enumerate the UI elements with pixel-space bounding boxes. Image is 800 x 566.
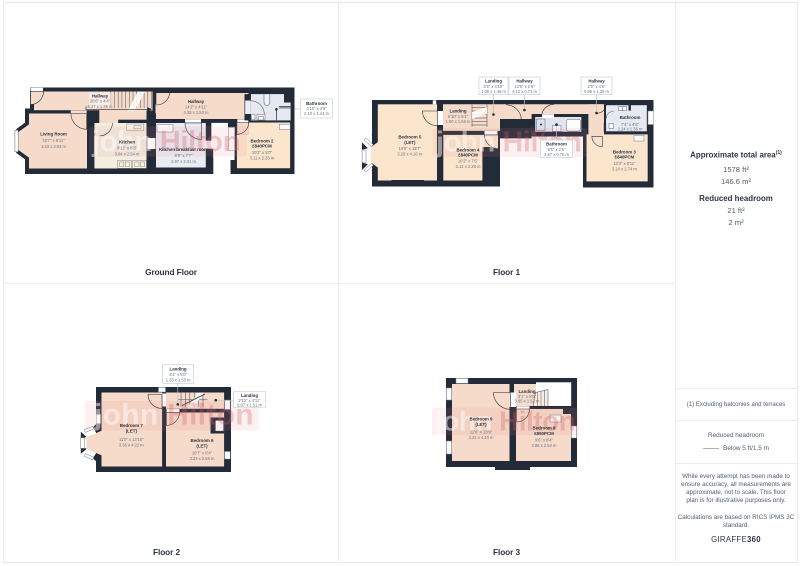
- svg-text:3.12 x 2.28 m: 3.12 x 2.28 m: [456, 164, 481, 169]
- svg-text:john Hilton: john Hilton: [434, 406, 575, 437]
- svg-text:(LET): (LET): [404, 140, 416, 145]
- svg-text:1.33 x 1.53 m: 1.33 x 1.53 m: [166, 377, 191, 382]
- svg-text:Bedroom 8: Bedroom 8: [533, 426, 556, 431]
- svg-text:3.29 x 4.16 m: 3.29 x 4.16 m: [397, 152, 422, 157]
- svg-text:Bedroom 3: Bedroom 3: [613, 149, 636, 154]
- svg-text:3.36 x 4.22 m: 3.36 x 4.22 m: [119, 443, 144, 448]
- svg-text:1.05 x 1.48 m: 1.05 x 1.48 m: [481, 89, 506, 94]
- svg-text:10'2" x 7'5": 10'2" x 7'5": [458, 159, 479, 164]
- svg-text:9'6" x 8'4": 9'6" x 8'4": [535, 438, 553, 443]
- svg-text:john Hilton: john Hilton: [93, 399, 254, 432]
- svg-text:Hallway: Hallway: [188, 99, 205, 104]
- svg-text:3.22 x 4.20 m: 3.22 x 4.20 m: [469, 435, 494, 440]
- svg-text:1.80 x 1.56 m: 1.80 x 1.56 m: [446, 119, 471, 124]
- svg-text:Kitchen: Kitchen: [119, 139, 135, 144]
- svg-text:10'7" x 9'11": 10'7" x 9'11": [42, 138, 65, 143]
- svg-text:0.87 x 1.51 m: 0.87 x 1.51 m: [237, 402, 262, 407]
- svg-text:£840PCM: £840PCM: [458, 153, 478, 158]
- svg-text:john Hilton: john Hilton: [91, 126, 240, 158]
- svg-text:2.57 x 0.76 m: 2.57 x 0.76 m: [544, 152, 569, 157]
- svg-text:£850PCM: £850PCM: [534, 431, 554, 436]
- svg-text:2.88 x 2.54 m: 2.88 x 2.54 m: [532, 443, 557, 448]
- svg-text:Bedroom 2: Bedroom 2: [251, 138, 274, 143]
- svg-text:Bedroom 5: Bedroom 5: [398, 135, 421, 140]
- svg-text:3.14 x 2.74 m: 3.14 x 2.74 m: [612, 166, 637, 171]
- svg-text:(LET): (LET): [475, 422, 487, 427]
- svg-text:(LET): (LET): [196, 443, 208, 448]
- svg-text:9'11" x 8'3": 9'11" x 8'3": [117, 146, 137, 151]
- svg-text:2.10 x 1.44 m: 2.10 x 1.44 m: [304, 111, 329, 116]
- svg-text:3.04 x 2.54 m: 3.04 x 2.54 m: [115, 152, 140, 157]
- svg-text:(LET): (LET): [126, 428, 138, 433]
- svg-text:6.27 x 1.35 m: 6.27 x 1.35 m: [88, 104, 113, 109]
- svg-text:Bedroom 9: Bedroom 9: [470, 417, 493, 422]
- svg-text:£840PCM: £840PCM: [252, 144, 272, 149]
- svg-text:2.97 x 2.31 m: 2.97 x 2.31 m: [171, 159, 196, 164]
- svg-text:Bedroom 4: Bedroom 4: [457, 147, 480, 152]
- svg-text:11'0" x 13'10": 11'0" x 13'10": [119, 437, 144, 442]
- svg-text:0.95 x 1.52 m: 0.95 x 1.52 m: [515, 399, 540, 404]
- svg-text:10'2" x 8'0": 10'2" x 8'0": [252, 150, 273, 155]
- svg-text:Living Room: Living Room: [40, 132, 67, 137]
- svg-text:3.23 x 2.55 m: 3.23 x 2.55 m: [190, 456, 215, 461]
- svg-text:4.12 x 0.73 m: 4.12 x 0.73 m: [512, 89, 537, 94]
- svg-text:4.35 x 1.50 m: 4.35 x 1.50 m: [184, 110, 209, 115]
- svg-text:Landing: Landing: [170, 367, 187, 372]
- svg-text:10'7" x 8'4": 10'7" x 8'4": [192, 451, 213, 456]
- svg-text:Hallway: Hallway: [92, 93, 109, 98]
- svg-text:3.23 x 3.03 m: 3.23 x 3.03 m: [41, 144, 66, 149]
- svg-text:3.11 x 2.33 m: 3.11 x 2.33 m: [250, 155, 275, 160]
- svg-text:Bedroom 6: Bedroom 6: [191, 438, 214, 443]
- svg-text:9'9" x 7'7": 9'9" x 7'7": [175, 153, 193, 158]
- svg-text:Bedroom 7: Bedroom 7: [120, 423, 143, 428]
- svg-text:11'6" x 13'9": 11'6" x 13'9": [470, 430, 493, 435]
- svg-text:2.24 x 1.36 m: 2.24 x 1.36 m: [618, 127, 643, 132]
- svg-text:Bathroom: Bathroom: [620, 115, 641, 120]
- svg-text:10'9" x 13'7": 10'9" x 13'7": [399, 146, 422, 151]
- svg-text:0.85 x 1.39 m: 0.85 x 1.39 m: [584, 89, 609, 94]
- svg-text:Landing: Landing: [449, 108, 466, 113]
- svg-text:£840PCM: £840PCM: [615, 155, 635, 160]
- svg-text:Kitchen breakfast room: Kitchen breakfast room: [159, 147, 208, 152]
- svg-text:10'3" x 8'11": 10'3" x 8'11": [613, 161, 636, 166]
